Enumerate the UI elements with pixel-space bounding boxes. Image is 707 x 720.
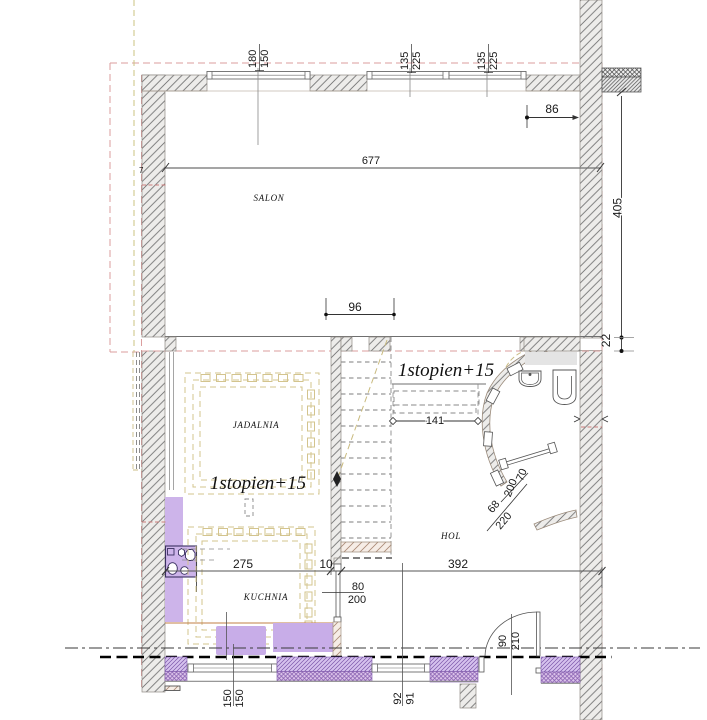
- svg-text:7: 7: [139, 166, 144, 175]
- svg-text:141: 141: [426, 415, 444, 427]
- svg-text:150: 150: [234, 689, 246, 707]
- svg-text:200: 200: [348, 594, 366, 606]
- svg-text:22: 22: [599, 334, 613, 348]
- svg-text:135: 135: [476, 52, 488, 70]
- svg-text:392: 392: [448, 557, 468, 571]
- svg-text:150: 150: [222, 689, 234, 707]
- svg-text:KUCHNIA: KUCHNIA: [243, 592, 288, 602]
- svg-text:90: 90: [497, 635, 509, 647]
- svg-text:80: 80: [352, 581, 364, 593]
- svg-text:10: 10: [319, 557, 333, 571]
- svg-text:96: 96: [348, 300, 362, 314]
- svg-text:180: 180: [247, 50, 259, 68]
- svg-text:677: 677: [362, 155, 380, 167]
- svg-text:HOL: HOL: [440, 531, 461, 541]
- svg-text:JADALNIA: JADALNIA: [233, 420, 280, 430]
- svg-text:405: 405: [611, 198, 625, 218]
- svg-text:210: 210: [510, 632, 522, 650]
- svg-text:150: 150: [259, 50, 271, 68]
- svg-text:275: 275: [233, 557, 253, 571]
- svg-text:225: 225: [488, 52, 500, 70]
- svg-text:SALON: SALON: [253, 193, 284, 203]
- svg-text:1stopien+15: 1stopien+15: [210, 473, 306, 494]
- svg-text:1stopien+15: 1stopien+15: [398, 360, 494, 381]
- svg-text:86: 86: [545, 102, 559, 116]
- svg-text:92: 92: [392, 692, 404, 704]
- svg-text:135: 135: [399, 52, 411, 70]
- svg-text:225: 225: [411, 52, 423, 70]
- svg-text:91: 91: [405, 692, 417, 704]
